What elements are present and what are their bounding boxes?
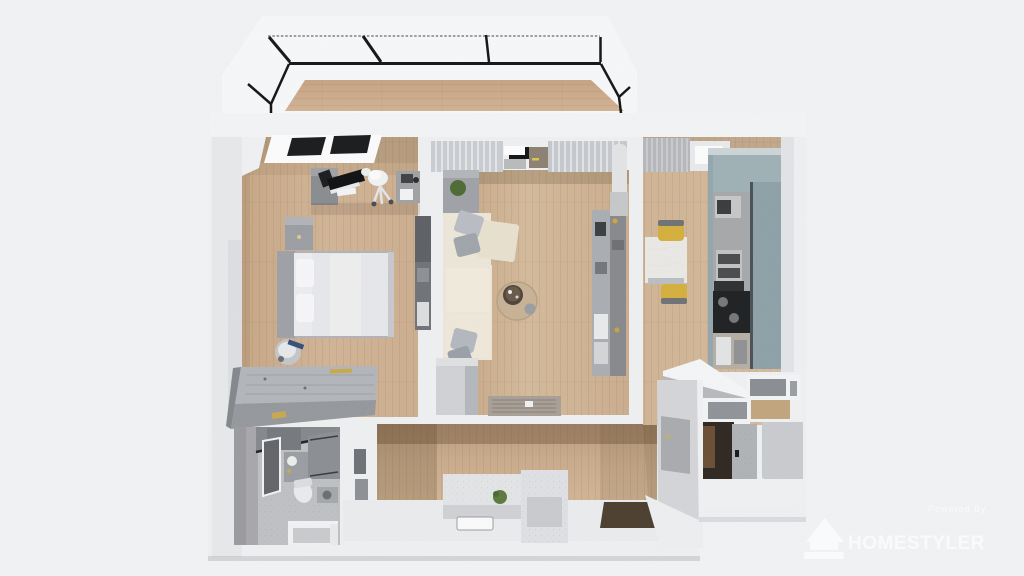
svg-text:Powered By: Powered By — [928, 504, 987, 514]
svg-text:HOMESTYLER: HOMESTYLER — [848, 533, 985, 554]
